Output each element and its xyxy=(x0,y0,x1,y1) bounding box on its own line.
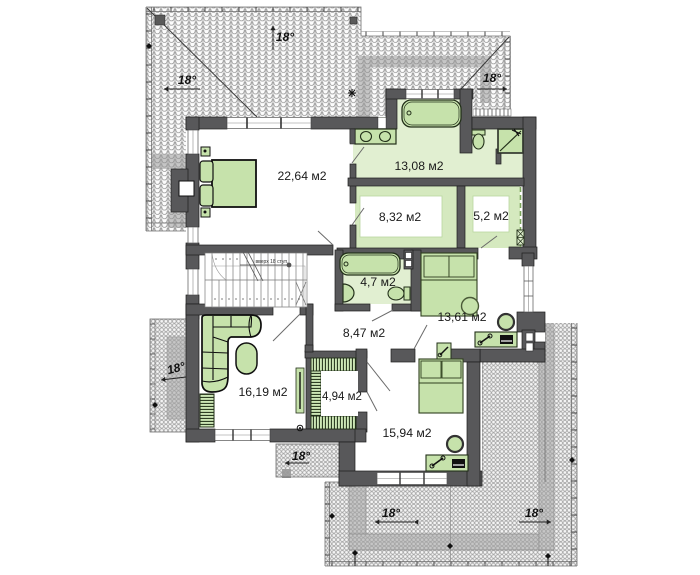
svg-text:15,94 м2: 15,94 м2 xyxy=(382,426,431,440)
svg-text:8,47 м2: 8,47 м2 xyxy=(343,326,385,340)
svg-text:18°: 18° xyxy=(382,506,400,520)
svg-text:16,19 м2: 16,19 м2 xyxy=(238,385,287,399)
svg-text:18°: 18° xyxy=(292,449,310,463)
svg-text:22,64 м2: 22,64 м2 xyxy=(277,169,326,183)
svg-text:13,08 м2: 13,08 м2 xyxy=(394,159,443,173)
svg-text:18°: 18° xyxy=(178,73,196,87)
svg-text:13,61 м2: 13,61 м2 xyxy=(437,310,486,324)
svg-text:вверх 18 ступ.: вверх 18 ступ. xyxy=(255,259,288,265)
svg-text:18°: 18° xyxy=(525,506,543,520)
svg-text:18°: 18° xyxy=(276,30,294,44)
svg-text:4,94 м2: 4,94 м2 xyxy=(322,391,362,403)
svg-text:5,2 м2: 5,2 м2 xyxy=(473,209,509,223)
svg-text:8,32 м2: 8,32 м2 xyxy=(379,210,421,224)
svg-text:4,7 м2: 4,7 м2 xyxy=(360,275,396,289)
svg-text:18°: 18° xyxy=(483,71,501,85)
